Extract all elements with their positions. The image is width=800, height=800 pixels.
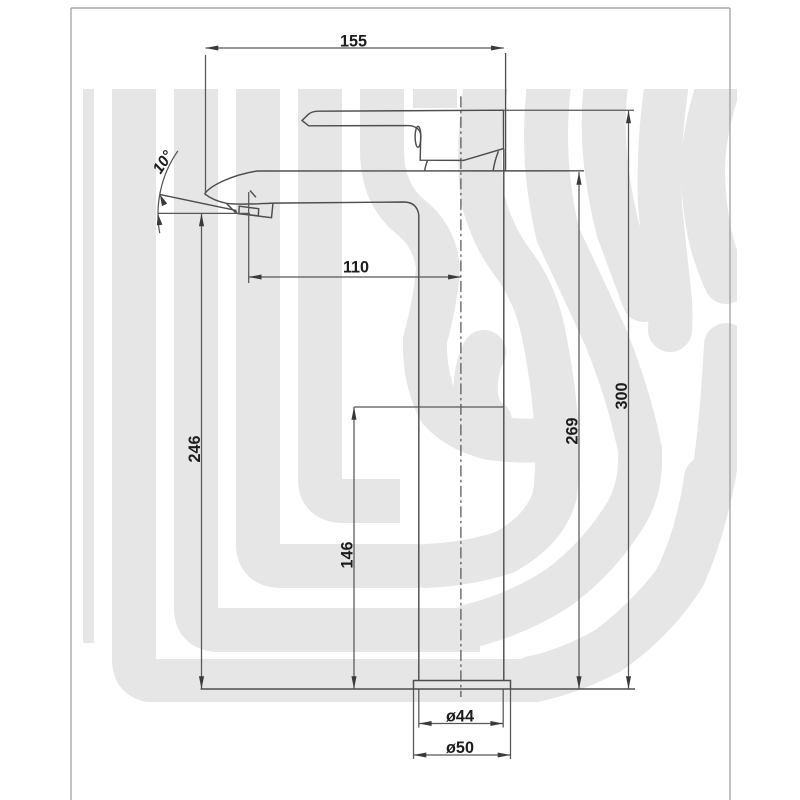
svg-text:246: 246: [186, 435, 204, 462]
svg-text:110: 110: [343, 259, 369, 277]
svg-text:155: 155: [340, 33, 367, 51]
svg-text:146: 146: [339, 541, 357, 568]
svg-text:ø50: ø50: [446, 739, 474, 757]
svg-text:269: 269: [564, 417, 582, 444]
svg-text:ø44: ø44: [446, 708, 474, 726]
svg-text:300: 300: [613, 382, 631, 409]
